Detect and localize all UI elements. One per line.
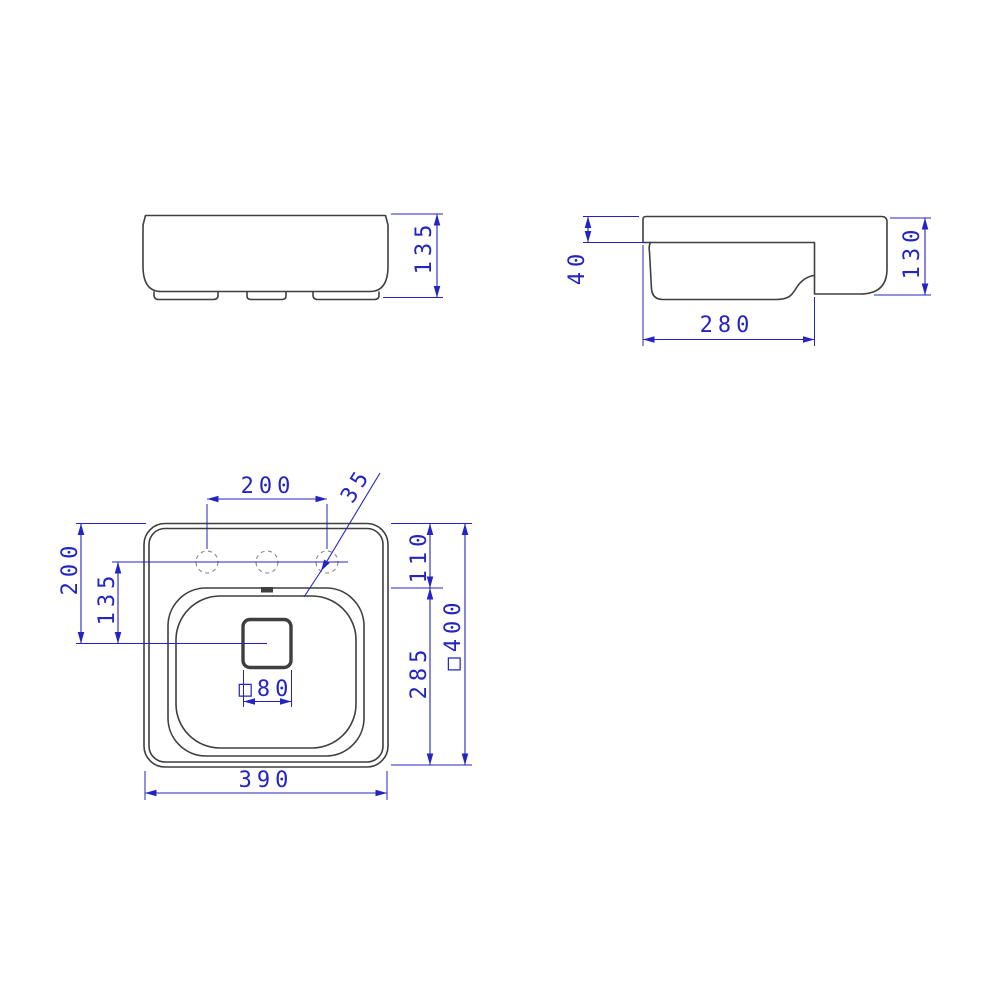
- overall-size-label: □400: [441, 598, 466, 671]
- overflow-slot: [261, 587, 273, 593]
- width-label: 390: [239, 768, 294, 793]
- front-foot-center: [247, 292, 286, 300]
- technical-drawing-canvas: 135 40 130 280: [0, 0, 1000, 1000]
- top-to-bowl-dimension: 110: [391, 524, 472, 589]
- plan-inner-rim: [149, 529, 383, 763]
- bowl-depth-plan-label: 285: [407, 645, 432, 700]
- top-to-bowl-label: 110: [407, 529, 432, 584]
- side-view: 40 130 280: [565, 217, 931, 347]
- washbasin-dimension-drawing: 135 40 130 280: [0, 0, 1000, 1000]
- holes-to-drain-dimension: 135: [95, 562, 120, 644]
- side-outline: [643, 217, 887, 295]
- width-dimension: 390: [145, 768, 387, 800]
- hole-diameter-label: 35: [336, 463, 377, 507]
- front-body-outline: [143, 216, 388, 292]
- drain-size-dimension: □80: [239, 670, 294, 707]
- bowl-depth-label: 280: [700, 313, 755, 338]
- drain-size-label: □80: [239, 677, 294, 702]
- hole-diameter-leader: 35: [304, 463, 380, 597]
- front-height-dimension: 135: [383, 214, 443, 298]
- hole-spacing-dimension: 200: [207, 474, 327, 549]
- rim-height-label: 40: [565, 249, 590, 286]
- front-foot-left: [154, 292, 218, 300]
- front-height-label: 135: [412, 220, 437, 275]
- bowl-depth-plan-dimension: 285: [407, 588, 432, 765]
- rim-height-dimension: 40: [565, 217, 646, 286]
- front-foot-right: [313, 292, 379, 300]
- bowl-opening: [168, 588, 364, 756]
- edge-to-drain-label: 200: [58, 541, 83, 596]
- side-height-dimension: 130: [874, 218, 931, 295]
- plan-view: 200 35 200 135 110 285: [58, 463, 472, 800]
- bowl-depth-dimension: 280: [643, 245, 815, 346]
- side-height-label: 130: [900, 225, 925, 280]
- plan-outer-rim: [144, 524, 388, 768]
- holes-to-drain-label: 135: [95, 571, 120, 626]
- side-bowl-profile: [649, 243, 814, 300]
- hole-spacing-label: 200: [241, 474, 296, 499]
- front-view: 135: [143, 214, 443, 300]
